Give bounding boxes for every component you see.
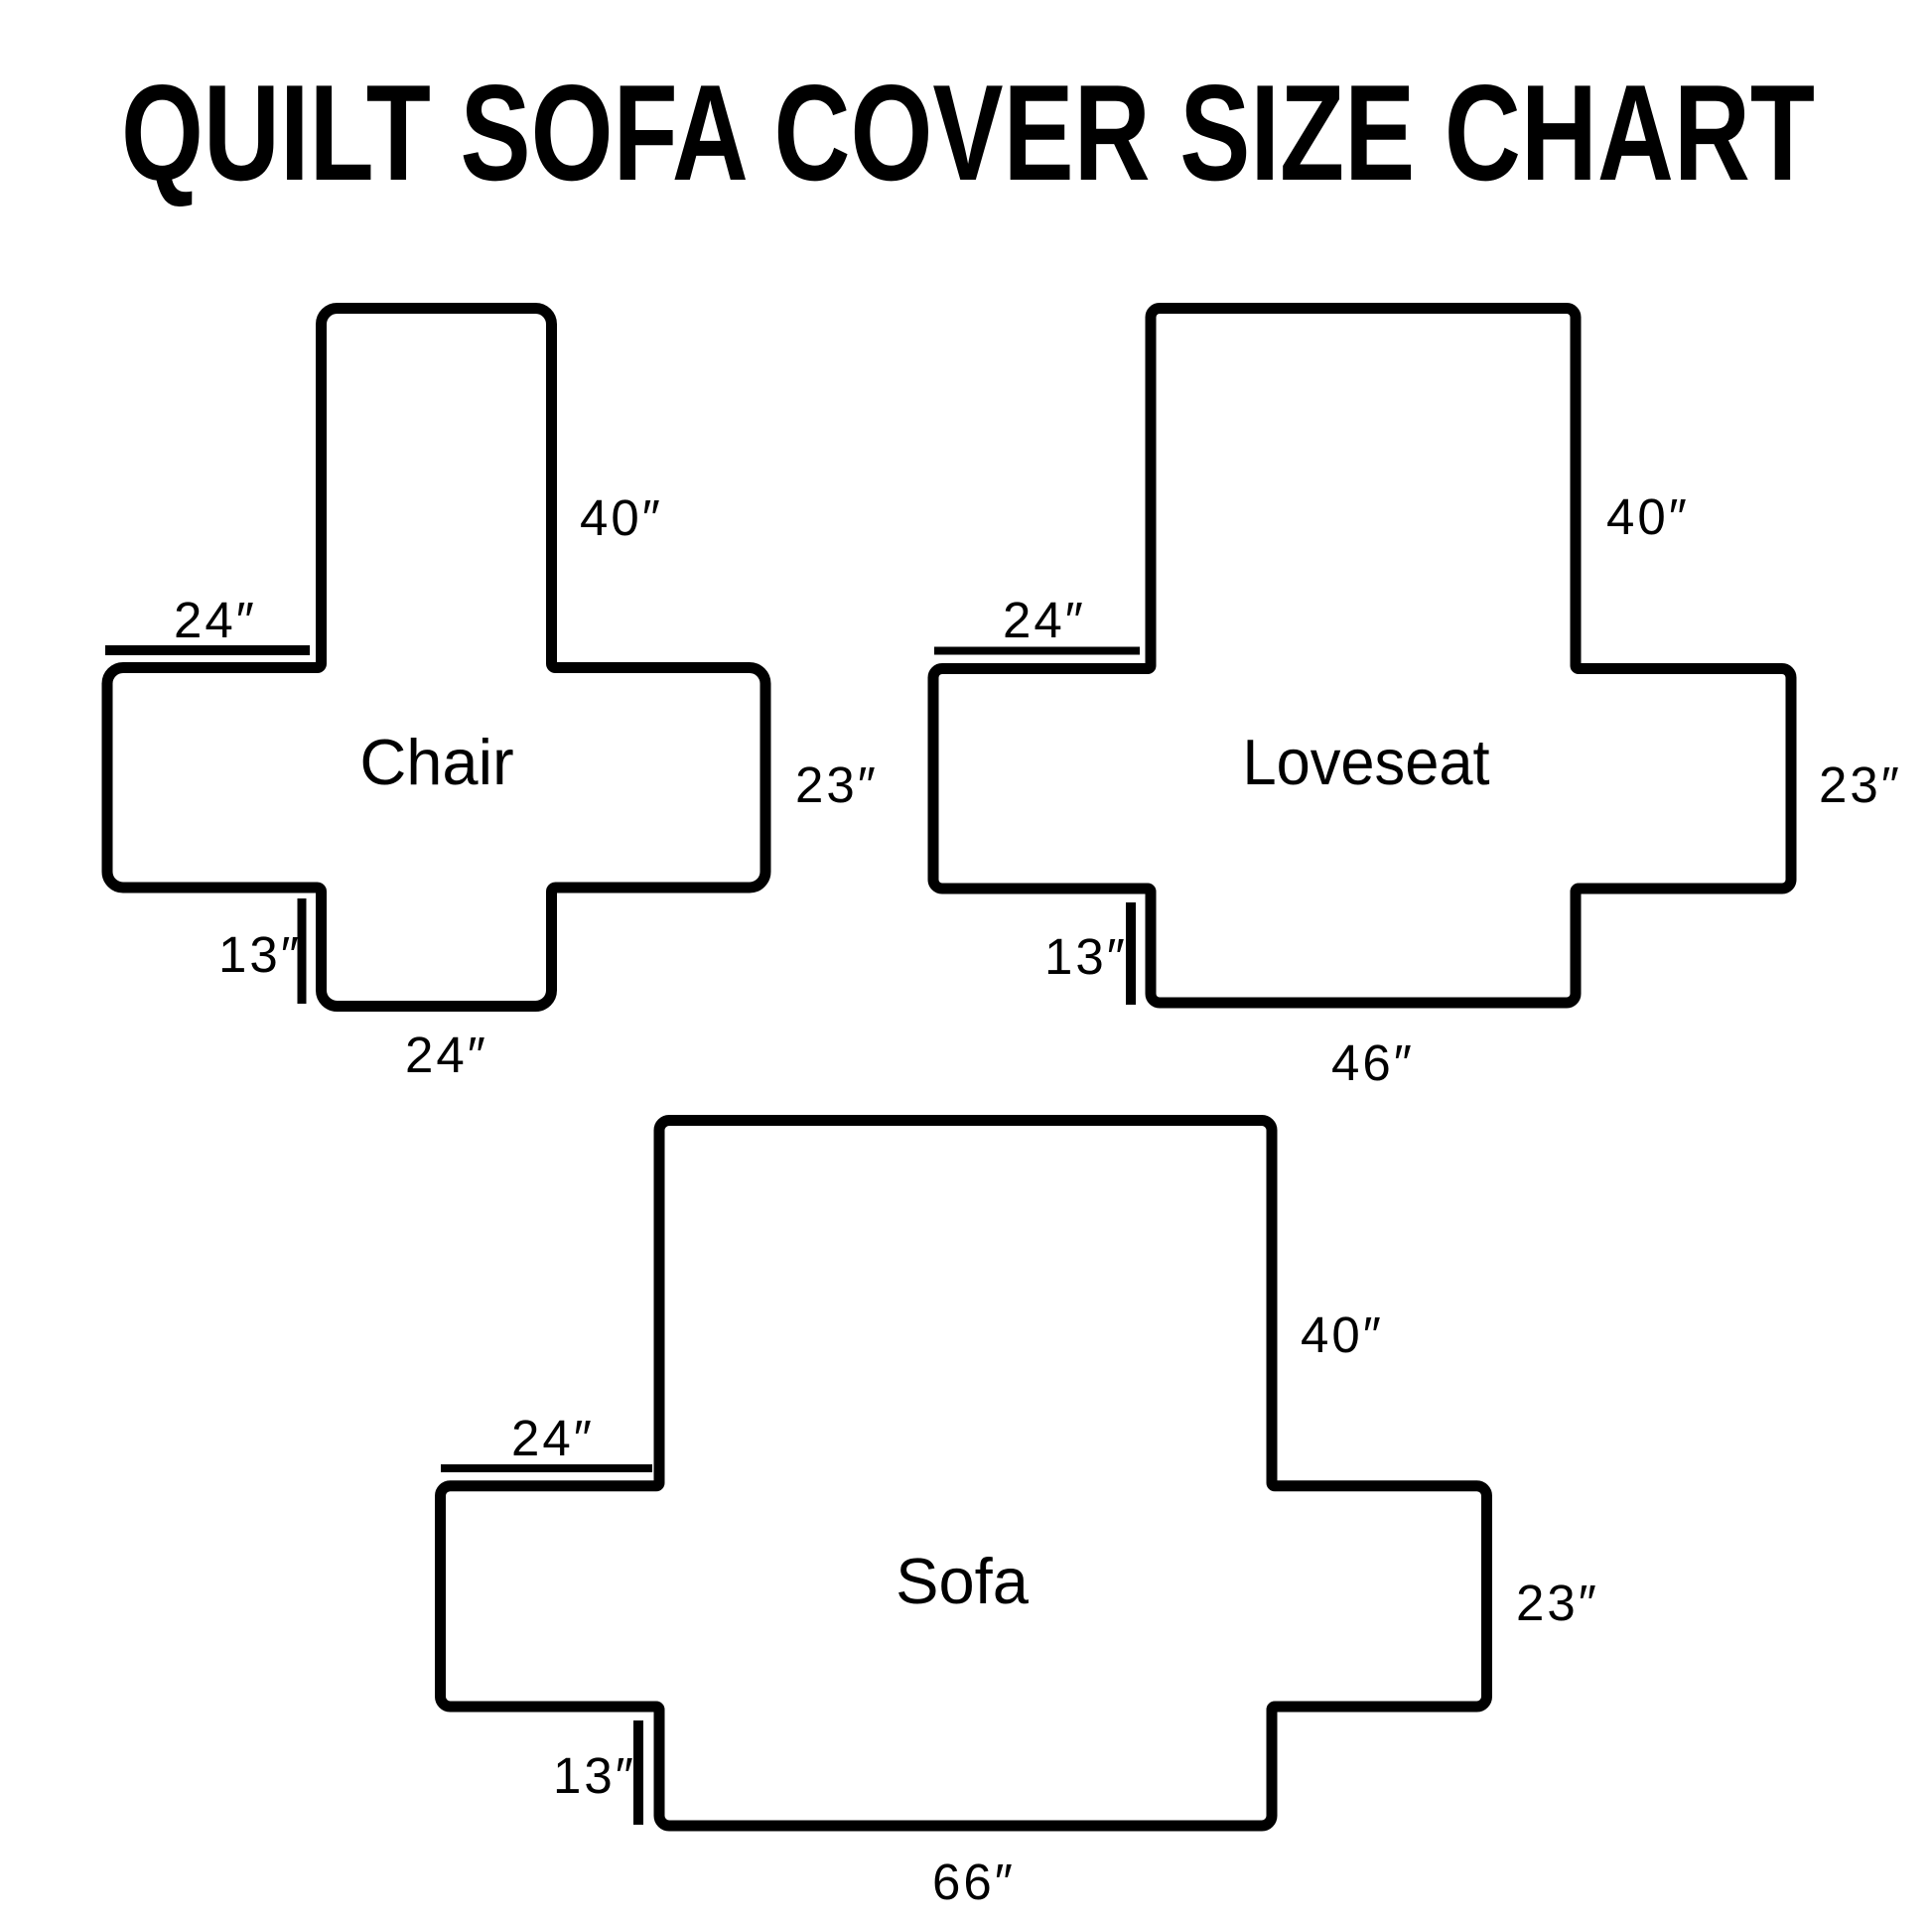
svg-text:66″: 66″ [932,1854,1016,1910]
svg-text:40″: 40″ [1606,488,1690,545]
svg-text:23″: 23″ [1516,1575,1599,1631]
svg-text:Loveseat: Loveseat [1243,726,1490,798]
svg-text:24″: 24″ [511,1410,595,1466]
svg-text:13″: 13″ [1044,928,1128,985]
svg-text:13″: 13″ [218,926,302,983]
svg-text:24″: 24″ [1003,592,1086,648]
svg-text:40″: 40″ [1301,1306,1384,1363]
svg-text:QUILT SOFA COVER SIZE CHART: QUILT SOFA COVER SIZE CHART [121,58,1815,209]
svg-text:13″: 13″ [553,1747,636,1804]
svg-text:23″: 23″ [795,756,879,813]
svg-text:23″: 23″ [1819,756,1902,813]
svg-text:Sofa: Sofa [896,1545,1030,1617]
svg-text:46″: 46″ [1331,1034,1415,1091]
svg-text:Chair: Chair [359,726,513,798]
svg-text:24″: 24″ [405,1027,488,1083]
svg-text:40″: 40″ [580,489,663,546]
svg-text:24″: 24″ [174,592,257,648]
